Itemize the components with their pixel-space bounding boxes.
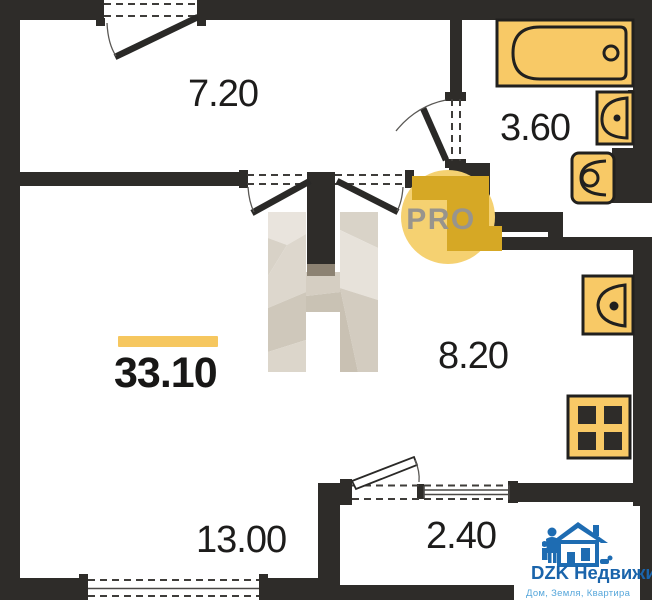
kitchen-sink-icon xyxy=(583,276,633,334)
hallway-door-swing-left xyxy=(248,181,310,213)
balcony-window xyxy=(424,490,509,495)
dzk-logo xyxy=(514,506,640,600)
entrance-opening xyxy=(104,4,197,16)
area-label-hallway: 7.20 xyxy=(188,74,258,116)
logo-brand-text: DZK Недвижимость xyxy=(531,562,652,584)
floor-plan: PRO 7.20 3.60 8.20 13.00 2.40 33.10 DZK … xyxy=(0,0,652,600)
wall-stub-cap xyxy=(307,264,335,276)
total-area-bar xyxy=(118,336,218,347)
area-label-balcony: 2.40 xyxy=(426,516,496,558)
area-label-bathroom: 3.60 xyxy=(500,108,570,150)
entrance-door-swing xyxy=(107,17,198,57)
logo-tagline-text: Дом, Земля, Квартира xyxy=(526,588,630,599)
pro-badge-text: PRO xyxy=(406,203,476,236)
balcony-door-swing xyxy=(352,457,419,489)
toilet-icon xyxy=(572,153,614,203)
total-area-label: 33.10 xyxy=(114,349,217,398)
bathroom-door-swing xyxy=(396,100,446,160)
area-label-living-room: 13.00 xyxy=(196,520,286,562)
area-label-kitchen: 8.20 xyxy=(438,336,508,378)
hallway-door-swing-right xyxy=(337,181,403,212)
stove-icon xyxy=(568,396,630,458)
bathroom-sink-icon xyxy=(597,92,633,144)
bathtub-icon xyxy=(497,20,633,86)
pro-badge: PRO xyxy=(401,170,502,264)
